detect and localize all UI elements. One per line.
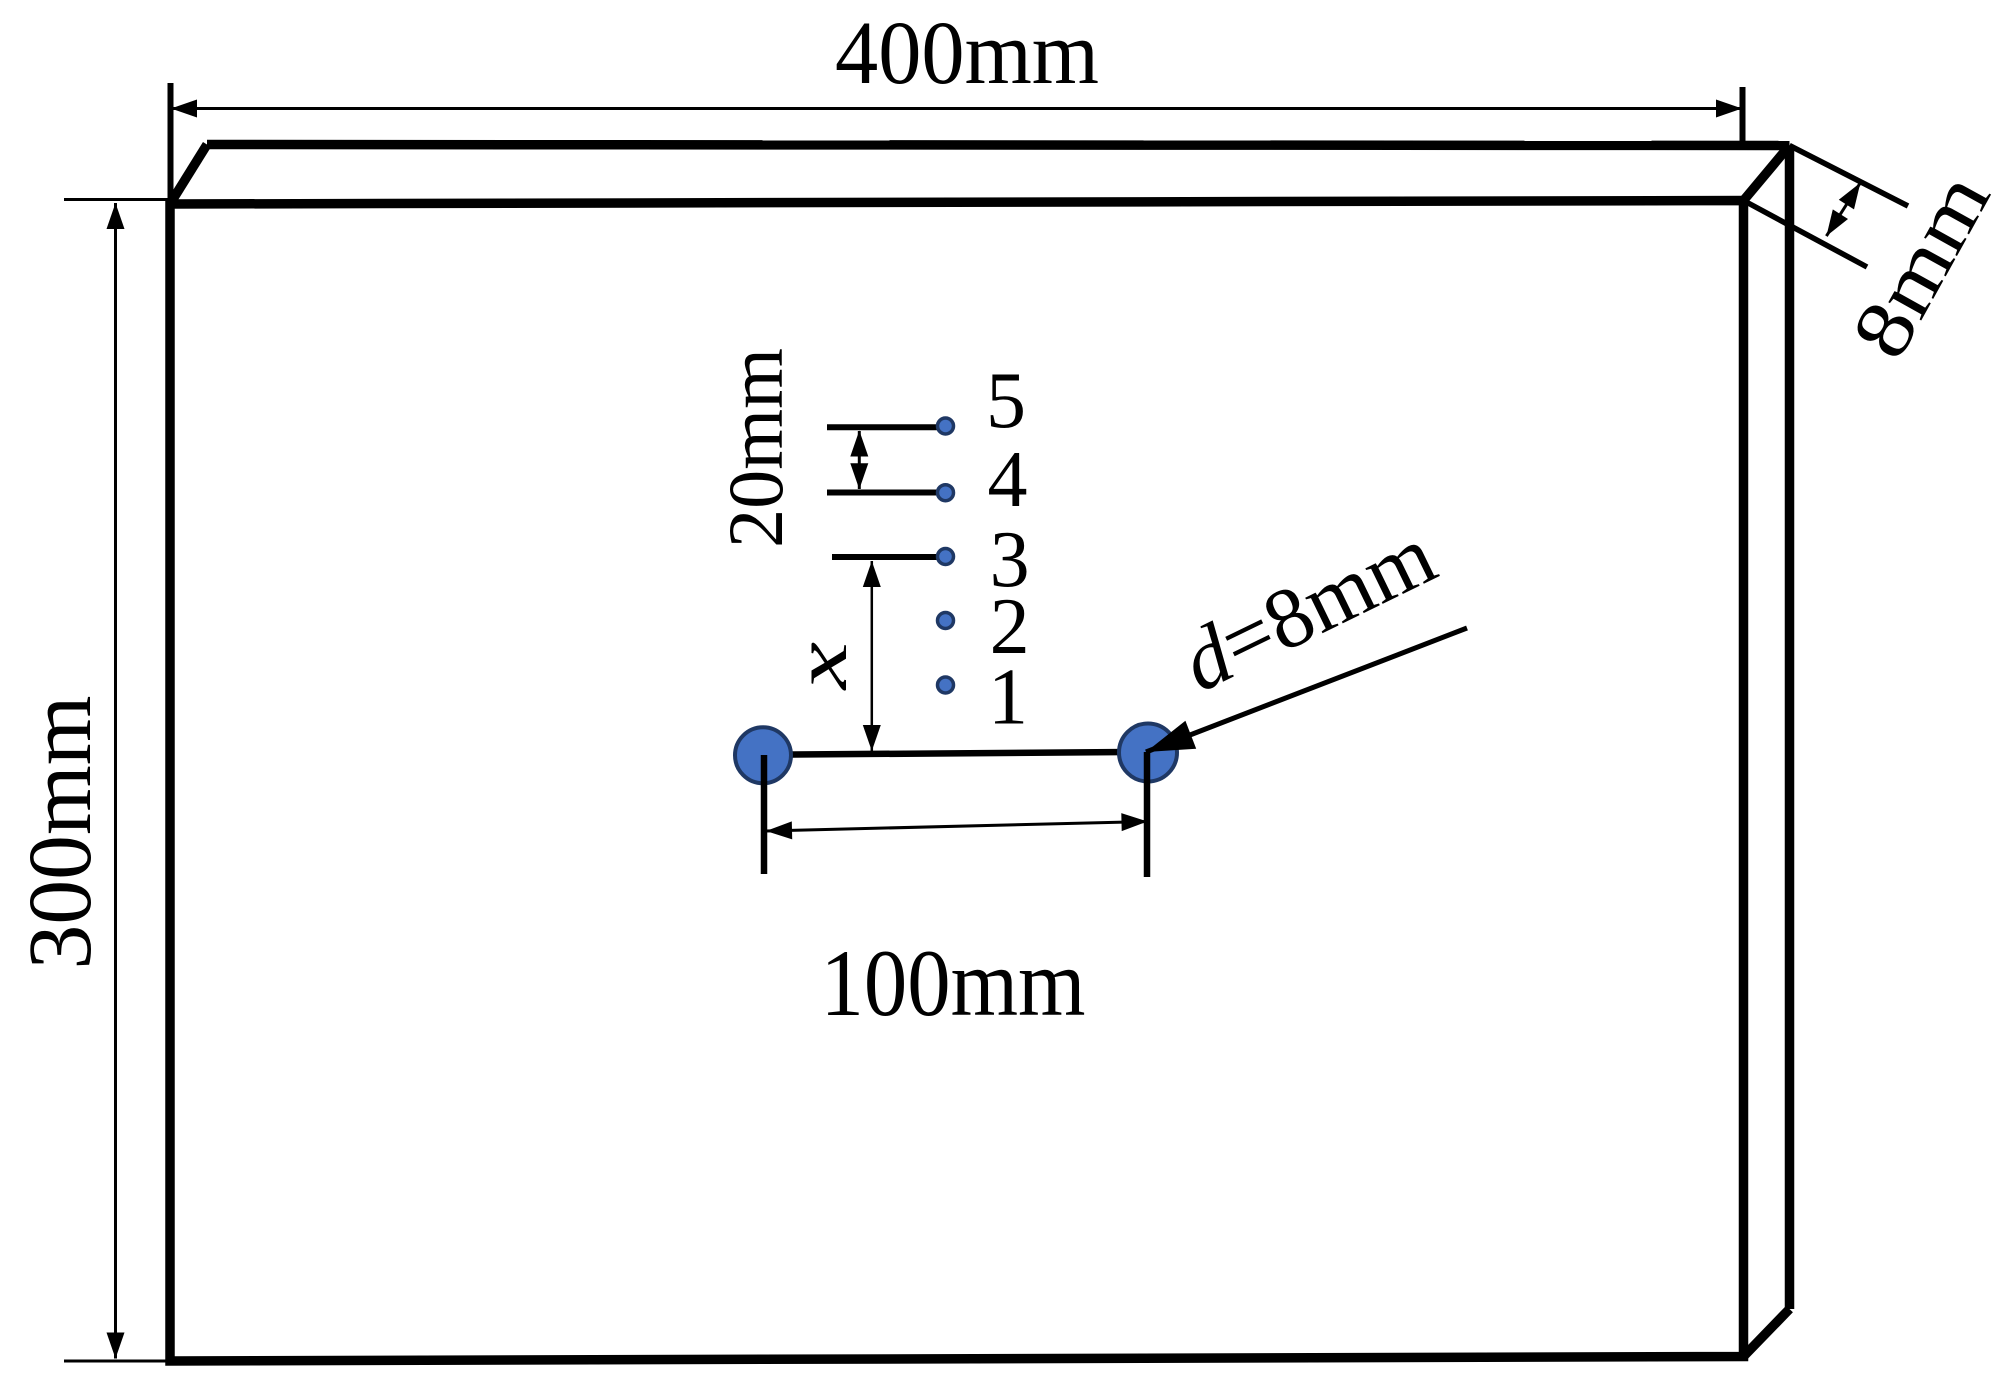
svg-text:20mm: 20mm bbox=[712, 348, 799, 548]
svg-text:x: x bbox=[780, 642, 863, 691]
svg-text:1: 1 bbox=[988, 654, 1028, 742]
svg-text:300mm: 300mm bbox=[11, 696, 110, 970]
svg-text:100mm: 100mm bbox=[821, 930, 1086, 1036]
svg-text:5: 5 bbox=[986, 357, 1026, 445]
svg-text:4: 4 bbox=[988, 436, 1028, 524]
svg-text:400mm: 400mm bbox=[835, 4, 1099, 103]
